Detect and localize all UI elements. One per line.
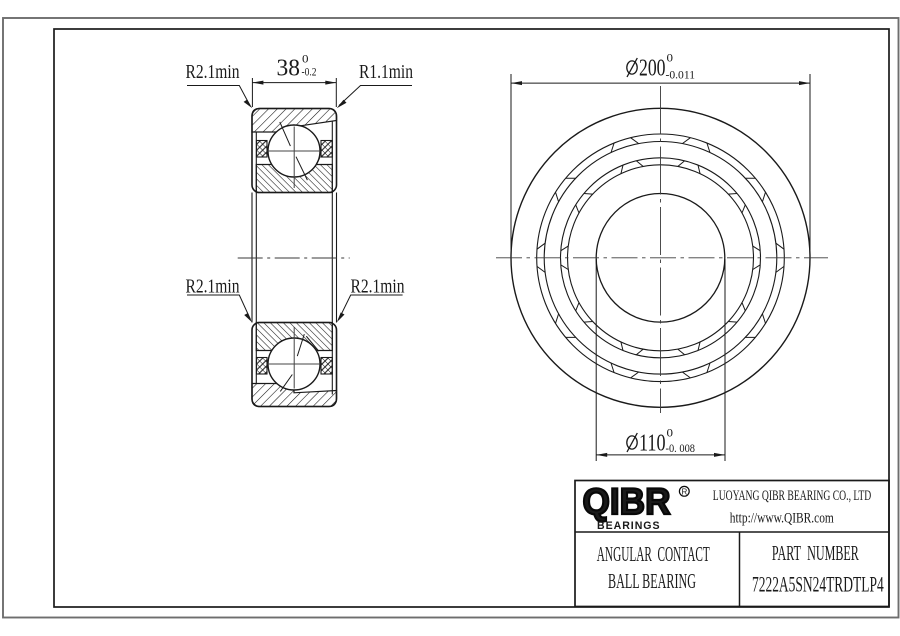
svg-text:R2.1min: R2.1min: [351, 277, 405, 298]
svg-text:38: 38: [277, 55, 301, 81]
svg-text:0: 0: [302, 51, 309, 65]
svg-text:0: 0: [667, 425, 674, 439]
svg-text:-0.2: -0.2: [302, 65, 317, 79]
svg-text:-0. 008: -0. 008: [666, 441, 696, 455]
svg-text:LUOYANG QIBR BEARING CO., LTD: LUOYANG QIBR BEARING CO., LTD: [713, 488, 872, 504]
svg-text:200: 200: [639, 55, 666, 81]
svg-text:-0.011: -0.011: [666, 68, 696, 82]
svg-text:R: R: [682, 488, 688, 497]
svg-text:R1.1min: R1.1min: [359, 62, 413, 83]
svg-text:BEARINGS: BEARINGS: [597, 520, 661, 532]
svg-text:ANGULAR CONTACT: ANGULAR CONTACT: [597, 542, 710, 566]
svg-text:BALL BEARING: BALL BEARING: [608, 569, 696, 593]
svg-text:R2.1min: R2.1min: [186, 62, 240, 83]
svg-text:110: 110: [639, 430, 666, 456]
svg-text:http://www.QIBR.com: http://www.QIBR.com: [730, 511, 834, 527]
svg-text:R2.1min: R2.1min: [186, 277, 240, 298]
svg-text:QIBR: QIBR: [583, 481, 671, 522]
svg-text:0: 0: [667, 51, 674, 65]
svg-text:7222A5SN24TRDTLP4: 7222A5SN24TRDTLP4: [752, 572, 884, 597]
svg-text:PART NUMBER: PART NUMBER: [772, 541, 859, 565]
